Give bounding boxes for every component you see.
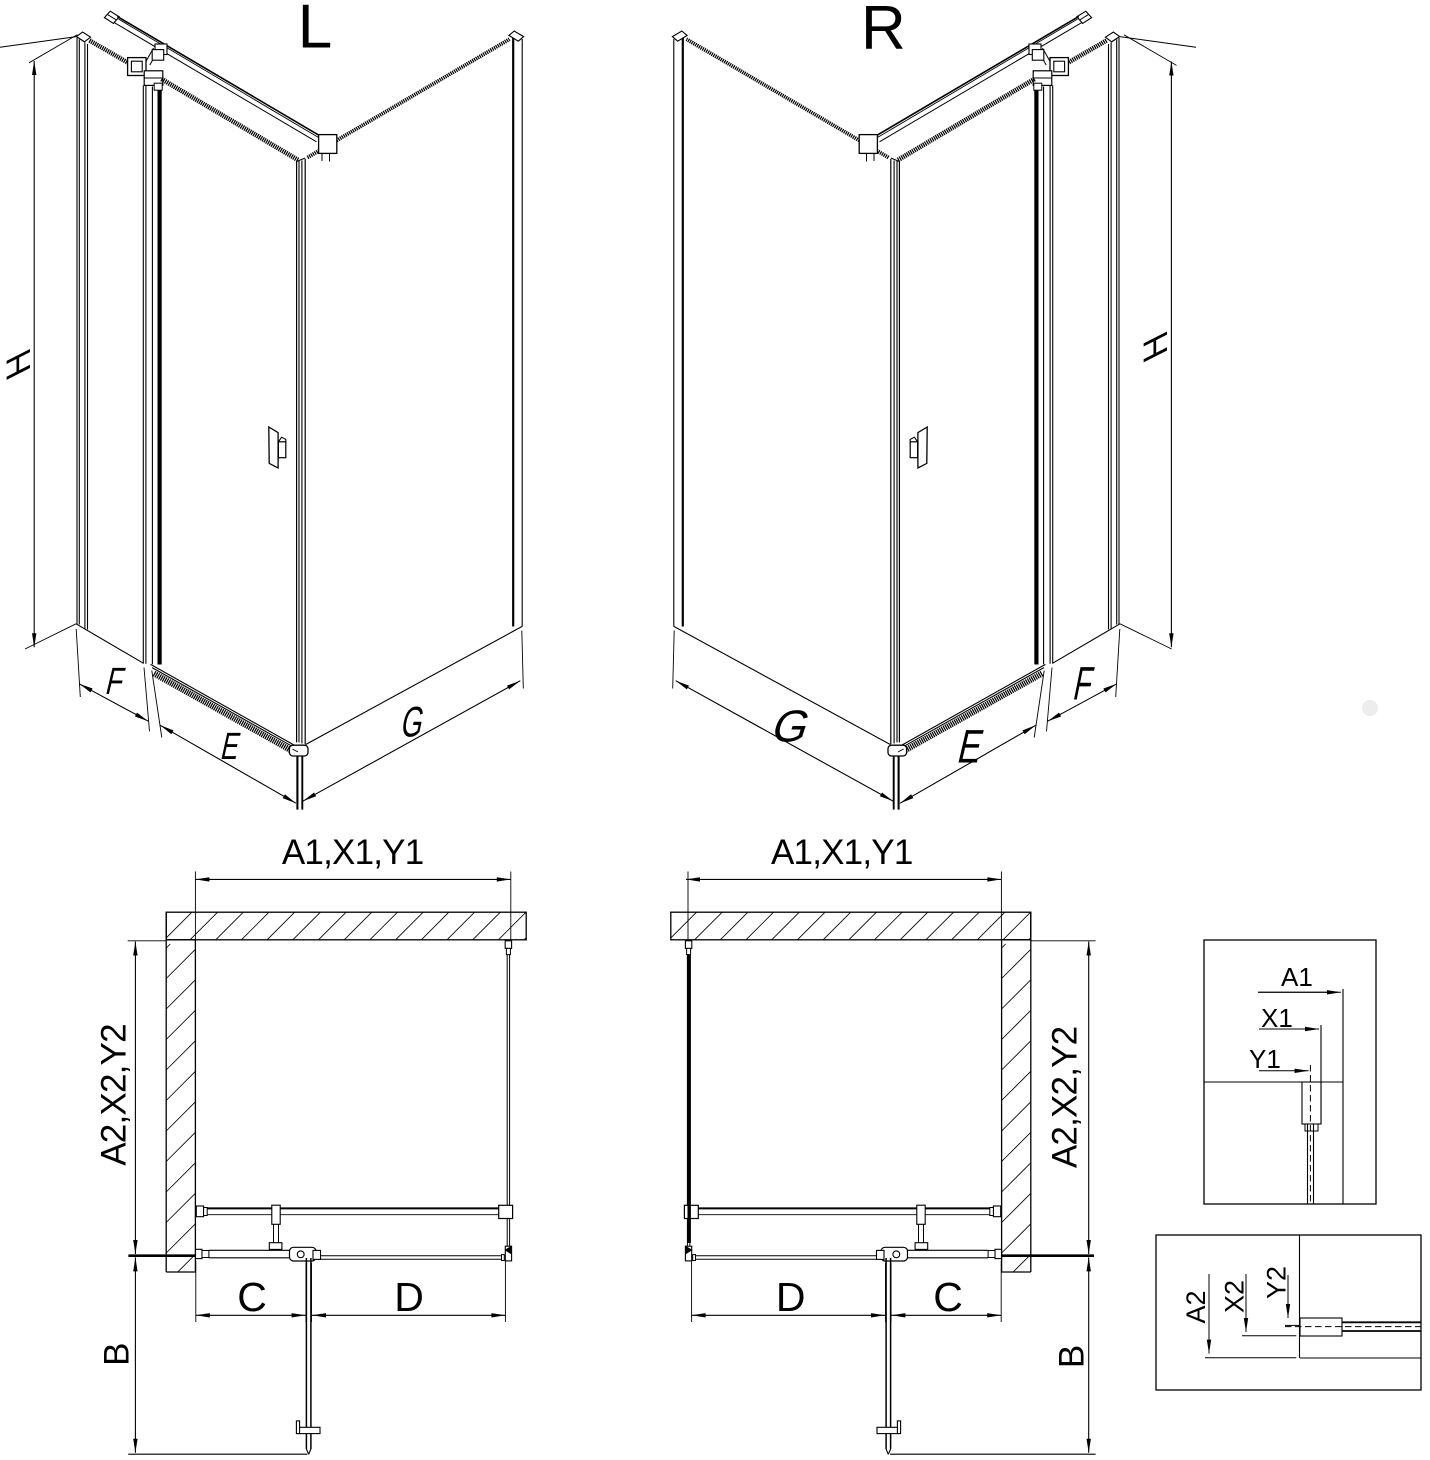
svg-text:A1,X1,Y1: A1,X1,Y1 (282, 833, 423, 872)
svg-text:L: L (298, 0, 332, 61)
svg-text:D: D (776, 1274, 806, 1320)
svg-text:A2,X2,Y2: A2,X2,Y2 (1046, 1027, 1085, 1168)
svg-text:B: B (1053, 1345, 1092, 1368)
svg-text:A2,X2,Y2: A2,X2,Y2 (95, 1024, 134, 1165)
svg-text:B: B (98, 1343, 137, 1366)
svg-text:C: C (933, 1274, 963, 1320)
svg-text:R: R (861, 0, 906, 63)
svg-text:C: C (237, 1274, 267, 1320)
svg-text:A2: A2 (1181, 1290, 1211, 1323)
svg-text:X1: X1 (1261, 1003, 1293, 1033)
svg-text:Y2: Y2 (1262, 1266, 1292, 1299)
svg-text:A1: A1 (1281, 962, 1313, 992)
svg-text:A1,X1,Y1: A1,X1,Y1 (771, 833, 912, 872)
svg-text:Y1: Y1 (1249, 1044, 1281, 1074)
svg-text:X2: X2 (1220, 1280, 1250, 1313)
svg-text:D: D (394, 1274, 424, 1320)
